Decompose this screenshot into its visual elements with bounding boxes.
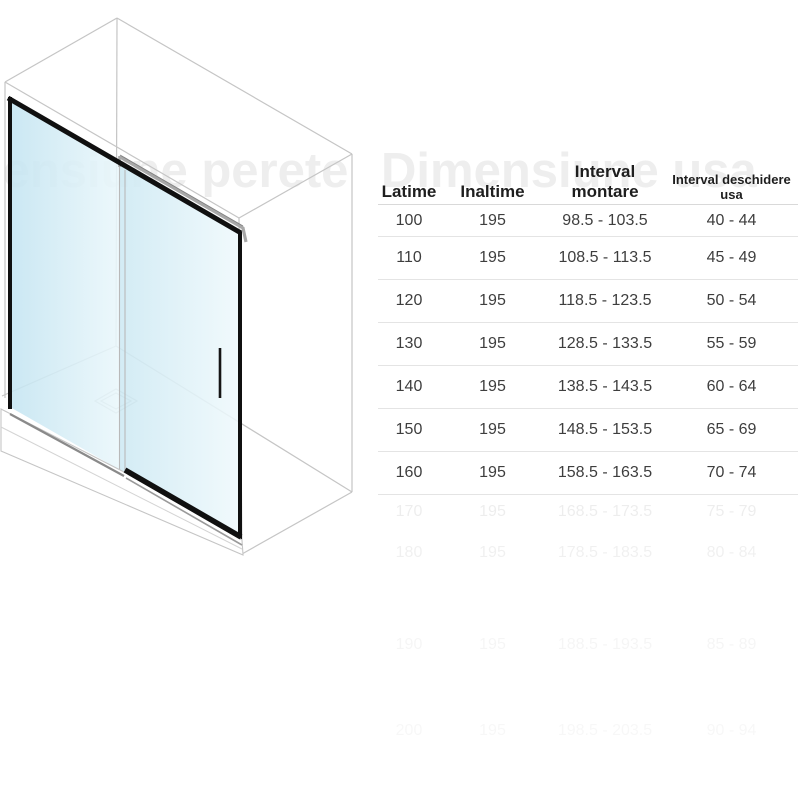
cell: 198.5 - 203.5: [545, 722, 665, 740]
cell: 195: [440, 378, 545, 396]
table-row: 110195108.5 - 113.545 - 49: [378, 237, 798, 280]
cell: 65 - 69: [665, 421, 798, 439]
cell: 45 - 49: [665, 249, 798, 267]
product-spec-page: { "watermarks": { "left_text": "Dimensiu…: [0, 0, 800, 800]
header-interval-montare: Interval montare: [545, 162, 665, 202]
cell: 100: [378, 212, 440, 230]
cell: 128.5 - 133.5: [545, 335, 665, 353]
faded-table-row: 200195198.5 - 203.590 - 94: [378, 710, 798, 752]
dimensions-table: Latime Inaltime Interval montare Interva…: [378, 158, 798, 495]
cell: 170: [378, 503, 440, 521]
cell: 195: [440, 421, 545, 439]
cell: 80 - 84: [665, 544, 798, 562]
cell: 195: [440, 503, 545, 521]
cell: 195: [440, 292, 545, 310]
faded-table-row: 190195188.5 - 193.585 - 89: [378, 624, 798, 666]
table-header-row: Latime Inaltime Interval montare Interva…: [378, 158, 798, 205]
cell: 50 - 54: [665, 292, 798, 310]
cell: 130: [378, 335, 440, 353]
cell: 195: [440, 544, 545, 562]
cell: 75 - 79: [665, 503, 798, 521]
cell: 120: [378, 292, 440, 310]
cell: 195: [440, 335, 545, 353]
cell: 110: [378, 249, 440, 267]
faded-table-row: 180195178.5 - 183.580 - 84: [378, 532, 798, 574]
header-latime: Latime: [378, 182, 440, 202]
cell: 150: [378, 421, 440, 439]
shower-door-illustration: [0, 0, 380, 620]
cell: 195: [440, 249, 545, 267]
cell: 148.5 - 153.5: [545, 421, 665, 439]
cell: 180: [378, 544, 440, 562]
cell: 195: [440, 464, 545, 482]
cell: 118.5 - 123.5: [545, 292, 665, 310]
cell: 138.5 - 143.5: [545, 378, 665, 396]
table-row: 130195128.5 - 133.555 - 59: [378, 323, 798, 366]
cell: 158.5 - 163.5: [545, 464, 665, 482]
table-body: 10019598.5 - 103.540 - 44110195108.5 - 1…: [378, 205, 798, 495]
table-row: 140195138.5 - 143.560 - 64: [378, 366, 798, 409]
table-row: 150195148.5 - 153.565 - 69: [378, 409, 798, 452]
table-row: 10019598.5 - 103.540 - 44: [378, 205, 798, 237]
faded-table-row: 170195168.5 - 173.575 - 79: [378, 491, 798, 533]
header-inaltime: Inaltime: [440, 182, 545, 202]
cell: 178.5 - 183.5: [545, 544, 665, 562]
header-interval-deschidere-usa: Interval deschidere usa: [669, 172, 795, 202]
cell: 195: [440, 212, 545, 230]
cell: 70 - 74: [665, 464, 798, 482]
cell: 140: [378, 378, 440, 396]
cell: 195: [440, 722, 545, 740]
cell: 55 - 59: [665, 335, 798, 353]
cell: 108.5 - 113.5: [545, 249, 665, 267]
cell: 85 - 89: [665, 636, 798, 654]
cell: 188.5 - 193.5: [545, 636, 665, 654]
cell: 168.5 - 173.5: [545, 503, 665, 521]
cell: 40 - 44: [665, 212, 798, 230]
cell: 98.5 - 103.5: [545, 212, 665, 230]
cell: 195: [440, 636, 545, 654]
cell: 200: [378, 722, 440, 740]
table-row: 120195118.5 - 123.550 - 54: [378, 280, 798, 323]
cell: 90 - 94: [665, 722, 798, 740]
cell: 190: [378, 636, 440, 654]
table-row: 160195158.5 - 163.570 - 74: [378, 452, 798, 495]
cell: 160: [378, 464, 440, 482]
cell: 60 - 64: [665, 378, 798, 396]
